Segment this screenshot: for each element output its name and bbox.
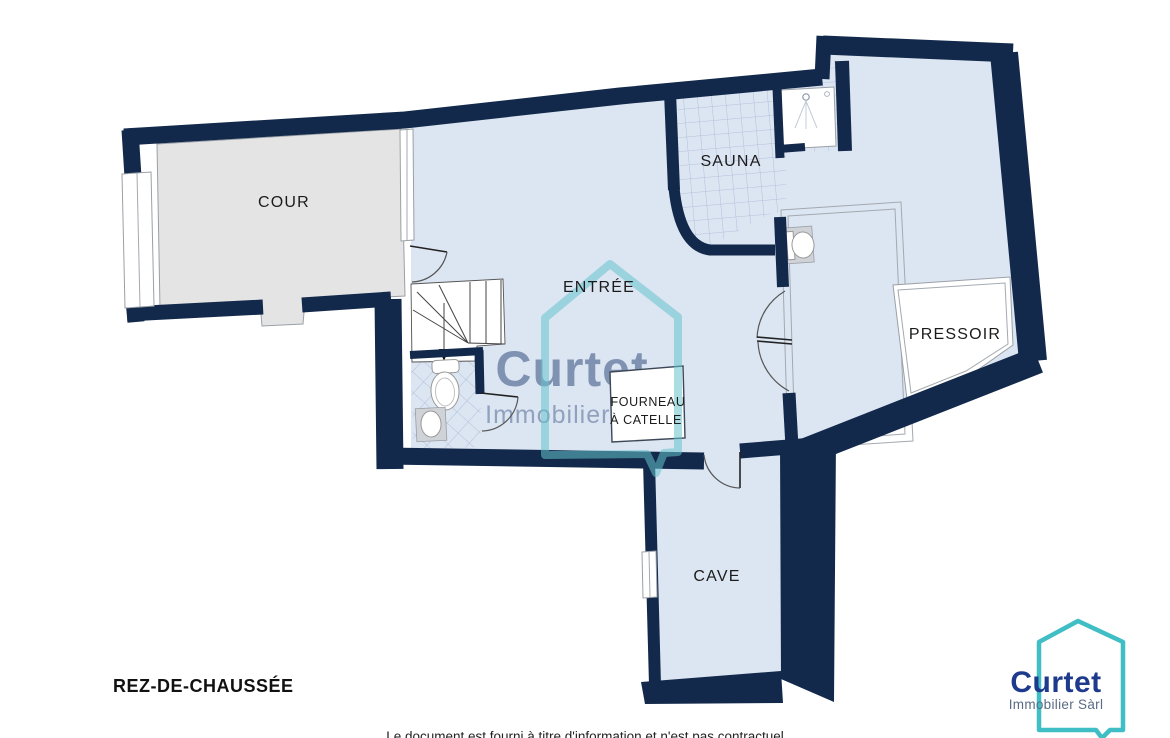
room-label-sauna: SAUNA xyxy=(700,153,761,170)
window-cour-left xyxy=(122,172,154,308)
disclaimer-text: Le document est fourni à titre d'informa… xyxy=(386,729,784,738)
room-label-fourneau-1: FOURNEAU xyxy=(611,395,686,409)
logo-subtitle: Immobilier Sàrl xyxy=(1009,697,1104,712)
room-label-cour: COUR xyxy=(258,194,310,211)
floor-title: REZ-DE-CHAUSSÉE xyxy=(113,675,294,696)
room-label-entree: ENTRÉE xyxy=(563,277,635,296)
window-cave xyxy=(642,551,657,598)
sink-icon xyxy=(415,407,447,442)
floorplan-canvas: Curtet Immobilier Sàrl xyxy=(0,0,1170,738)
small-toilet-icon xyxy=(785,226,815,264)
room-label-pressoir: PRESSOIR xyxy=(909,326,1001,343)
floorplan-page: Curtet Immobilier Sàrl xyxy=(0,0,1170,738)
room-label-cave: CAVE xyxy=(693,568,740,585)
logo-brand: Curtet xyxy=(1010,666,1101,699)
shower xyxy=(781,87,836,149)
window-cour-right xyxy=(400,129,414,241)
room-label-fourneau-2: À CATELLE xyxy=(610,412,682,427)
toilet-icon xyxy=(430,359,460,410)
